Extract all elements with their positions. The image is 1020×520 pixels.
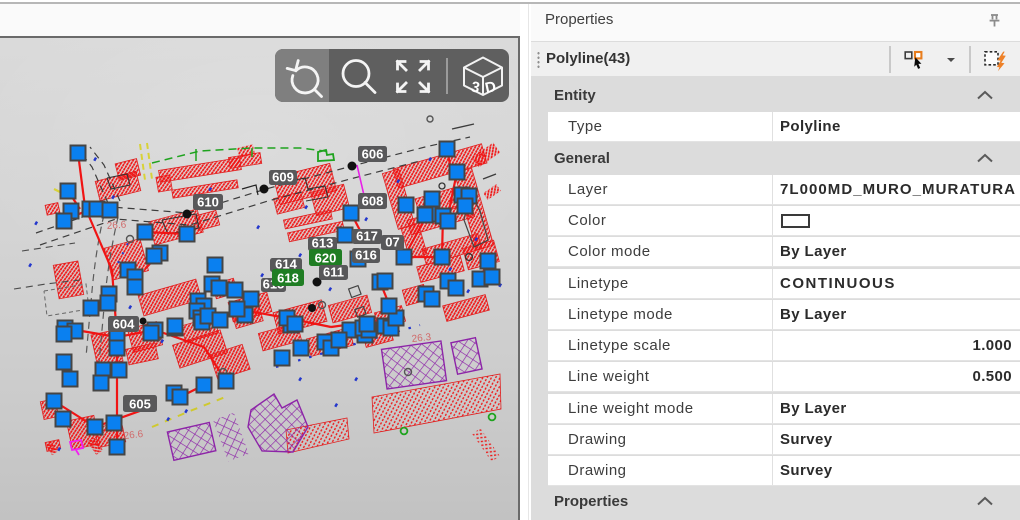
svg-text:26.6: 26.6 — [106, 220, 127, 232]
svg-text:26.3: 26.3 — [411, 332, 432, 345]
svg-text:611: 611 — [323, 265, 344, 280]
svg-text:606: 606 — [362, 147, 384, 162]
svg-text:604: 604 — [113, 317, 135, 332]
svg-text:608: 608 — [362, 194, 384, 209]
svg-text:07: 07 — [385, 235, 399, 250]
svg-text:605: 605 — [129, 397, 151, 412]
svg-text:618: 618 — [277, 271, 299, 286]
svg-text:613: 613 — [312, 236, 334, 251]
svg-text:617: 617 — [356, 229, 378, 244]
svg-text:609: 609 — [272, 170, 294, 185]
svg-text:620: 620 — [315, 251, 337, 266]
svg-text:26.6: 26.6 — [123, 429, 144, 442]
svg-text:610: 610 — [197, 195, 219, 210]
svg-text:616: 616 — [355, 248, 377, 263]
